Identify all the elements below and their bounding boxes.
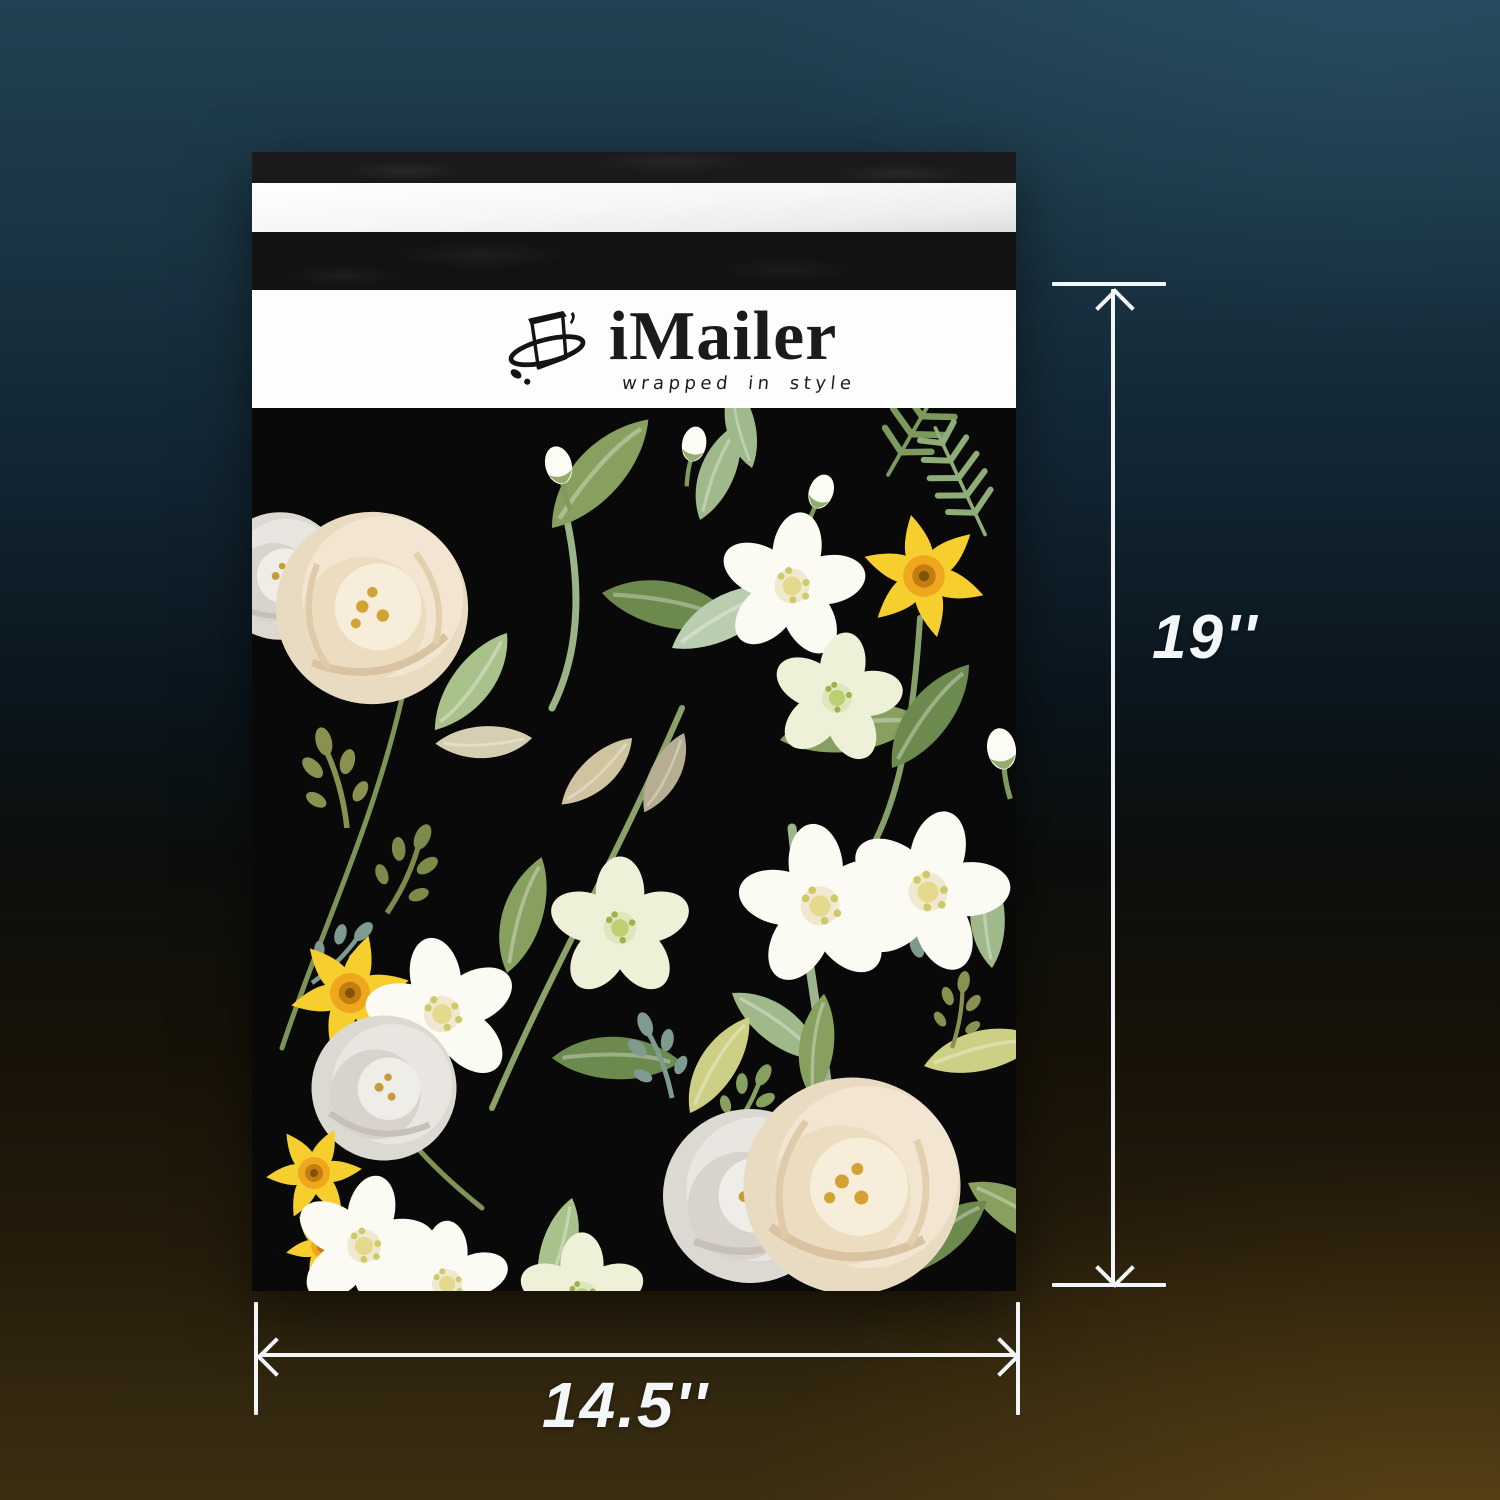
arrow-left-icon bbox=[256, 1337, 296, 1377]
height-arrow-line bbox=[1111, 289, 1115, 1284]
brand-name: iMailer bbox=[609, 304, 838, 371]
floral-print-illustration bbox=[252, 408, 1016, 1291]
brand-tagline: wrapped in style bbox=[621, 373, 857, 394]
brand-text-block: iMailer wrapped in style bbox=[606, 304, 840, 395]
ink-parcel-swoosh-icon bbox=[504, 306, 590, 392]
mailer-flap bbox=[252, 232, 1016, 290]
arrow-right-icon bbox=[980, 1337, 1020, 1377]
arrow-down-icon bbox=[1095, 1248, 1135, 1288]
poly-mailer: iMailer wrapped in style bbox=[252, 152, 1016, 1291]
height-cap-bottom bbox=[1052, 1283, 1166, 1287]
width-tick-right bbox=[1016, 1302, 1020, 1415]
width-arrow-line bbox=[260, 1353, 1016, 1357]
mailer-seal-strip bbox=[252, 183, 1016, 232]
product-dimension-image: iMailer wrapped in style bbox=[0, 0, 1500, 1500]
width-label: 14.5'' bbox=[542, 1368, 709, 1442]
height-label: 19'' bbox=[1152, 602, 1258, 673]
arrow-up-icon bbox=[1095, 288, 1135, 328]
brand-band: iMailer wrapped in style bbox=[252, 290, 1016, 408]
mailer-flap-edge bbox=[252, 152, 1016, 183]
brand-logo: iMailer wrapped in style bbox=[504, 304, 840, 395]
height-cap-top bbox=[1052, 282, 1166, 286]
